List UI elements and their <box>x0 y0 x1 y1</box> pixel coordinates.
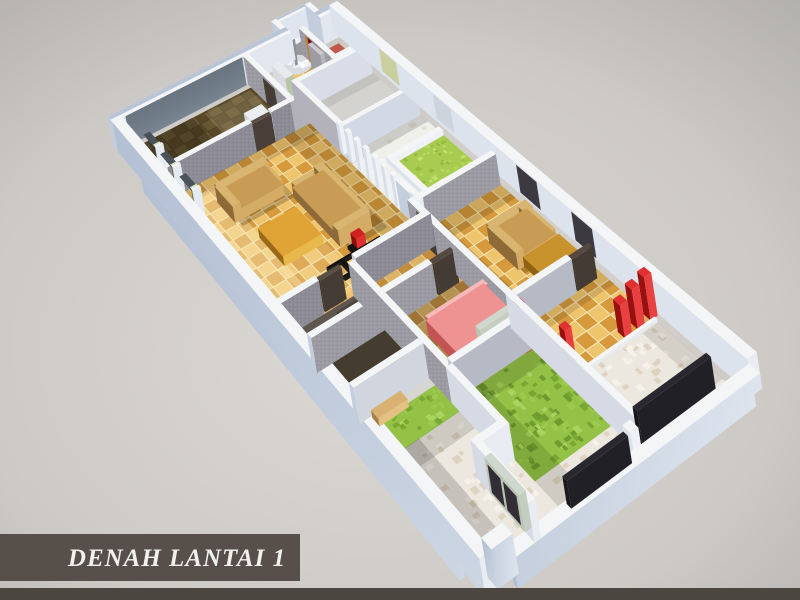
svg-text:DENAH LANTAI 1: DENAH LANTAI 1 <box>67 545 286 572</box>
